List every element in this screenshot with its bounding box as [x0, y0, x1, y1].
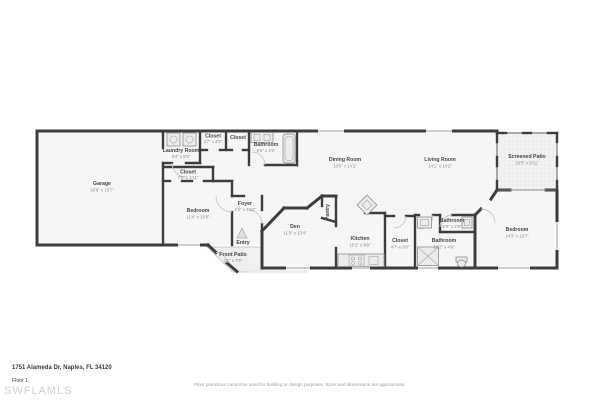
- main-bath-vanity-icon: [418, 217, 432, 228]
- room-dims-closet-top-1: 2'7" x 2'2": [204, 139, 223, 144]
- watermark-text: SWFLAMLS: [4, 385, 73, 397]
- floorplan-page: Garage 20'8" x 19'7" Laundry Room 9'4" x…: [0, 0, 600, 400]
- room-dims-foyer: 4'2" x 4'10": [234, 207, 256, 212]
- room-dims-bedroom-right: 14'3" x 12'7": [505, 234, 529, 239]
- room-dims-living: 14'1" x 14'2": [428, 164, 452, 169]
- room-dims-closet-walkin: 4'7" x 9'6": [391, 245, 410, 250]
- room-dims-laundry: 9'4" x 6'5": [172, 154, 191, 159]
- washer-icon: [167, 133, 180, 146]
- room-dims-bathroom-small: 5'9" x 2'9": [443, 224, 462, 229]
- address-text: 1751 Alameda Dr, Naples, FL 34120: [12, 365, 112, 371]
- room-dims-front-patio: 7'5" x 7'5": [224, 258, 243, 263]
- room-dims-dining: 10'8" x 14'1": [333, 164, 357, 169]
- floorplan-drawing: Garage 20'8" x 19'7" Laundry Room 9'4" x…: [0, 0, 600, 400]
- toilet-icon: [456, 257, 467, 267]
- room-dims-bathroom-top: 9'6" x 4'9": [257, 148, 276, 153]
- room-label-screened-patio: Screened Patio: [508, 154, 545, 160]
- room-label-bathroom-main: Bathroom: [432, 238, 457, 244]
- footer: 1751 Alameda Dr, Naples, FL 34120 Floor …: [4, 365, 406, 397]
- room-dims-garage: 20'8" x 19'7": [90, 188, 114, 193]
- room-dims-kitchen: 10'2" x 9'9": [349, 243, 371, 248]
- bathtub-icon: [283, 134, 295, 163]
- room-label-den: Den: [290, 224, 300, 230]
- bathroom-top-vanity-icon: [251, 133, 273, 143]
- room-dims-bedroom-left: 11'4" x 10'6": [186, 215, 210, 220]
- room-label-kitchen: Kitchen: [350, 236, 369, 242]
- room-dims-bathroom-main: 10'2" x 4'9": [433, 245, 455, 250]
- room-label-closet-top-2: Closet: [230, 135, 246, 141]
- walkway-strip: [247, 270, 307, 274]
- room-label-closet-walkin: Closet: [392, 238, 408, 244]
- room-label-living: Living Room: [424, 157, 456, 163]
- room-label-bedroom-left: Bedroom: [187, 208, 210, 214]
- room-dims-closet-bedroom: 7'6" x 1'11": [178, 175, 199, 180]
- room-label-pantry: Pantry: [325, 204, 331, 220]
- shower-icon: [418, 247, 439, 266]
- room-label-garage: Garage: [93, 181, 111, 187]
- room-dims-screened-patio: 10'5" x 9'11": [515, 161, 539, 166]
- floor-label: Floor 1: [12, 378, 28, 384]
- room-dims-den: 11'3" x 13'4": [283, 231, 307, 236]
- dryer-icon: [183, 133, 196, 146]
- room-label-entry: Entry: [236, 240, 249, 246]
- room-label-dining: Dining Room: [329, 157, 362, 163]
- disclaimer-text: Floor plans/tour cannot be used for buil…: [194, 382, 406, 387]
- room-label-bedroom-right: Bedroom: [506, 227, 529, 233]
